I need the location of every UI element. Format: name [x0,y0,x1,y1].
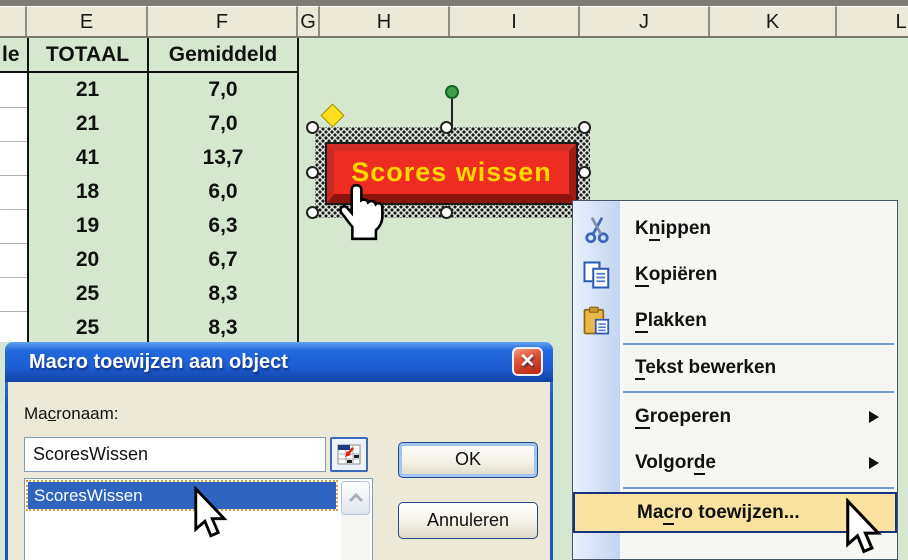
column-header-partial[interactable] [0,6,27,37]
menu-separator [623,343,894,345]
cell-E[interactable]: 20 [28,243,147,277]
submenu-arrow-icon [869,411,879,423]
table-header-gemiddeld[interactable]: Gemiddeld [149,38,297,71]
cell-F[interactable]: 13,7 [149,141,297,175]
column-header-L[interactable]: L [837,6,908,37]
resize-handle-bottom-left[interactable] [306,206,319,219]
cell-E[interactable]: 25 [28,311,147,345]
copy-icon [582,260,612,290]
listbox-scrollbar[interactable] [341,481,370,560]
table-header-totaal[interactable]: TOTAAL [28,38,147,71]
cell-E[interactable]: 21 [28,73,147,107]
column-header-K[interactable]: K [710,6,837,37]
resize-handle-middle-left[interactable] [306,166,319,179]
gridline [0,209,27,210]
arrow-cursor-listbox [192,486,228,545]
cell-F[interactable]: 8,3 [149,311,297,345]
resize-handle-middle-right[interactable] [578,166,591,179]
gridline [0,107,27,108]
dialog-titlebar[interactable]: Macro toewijzen aan object ✕ [5,342,553,382]
resize-handle-top-left[interactable] [306,121,319,134]
adjust-diamond-handle[interactable] [320,103,344,127]
collapse-dialog-icon [337,444,361,465]
chevron-up-icon [348,493,364,503]
scissors-icon [582,214,612,244]
gridline [0,243,27,244]
column-header-G[interactable]: G [298,6,320,37]
gridline [0,141,27,142]
dialog-body: Macronaam: OK Annuleren [8,382,550,560]
cell-E[interactable]: 41 [28,141,147,175]
column-header-H[interactable]: H [320,6,450,37]
column-header-I[interactable]: I [450,6,580,37]
cell-E[interactable]: 25 [28,277,147,311]
left-column-cells[interactable] [0,73,27,342]
menu-item-tekst-bewerken[interactable]: Tekst bewerken [573,348,897,388]
cell-F[interactable]: 8,3 [149,277,297,311]
cell-F[interactable]: 6,0 [149,175,297,209]
close-icon[interactable]: ✕ [512,347,543,376]
macro-assign-dialog: Macro toewijzen aan object ✕ Macronaam: [5,342,553,560]
menu-item-volgorde[interactable]: Volgorde [573,443,897,483]
menu-item-groeperen[interactable]: Groeperen [573,397,897,437]
macro-name-input[interactable] [24,437,326,472]
resize-handle-bottom-middle[interactable] [440,206,453,219]
cell-E[interactable]: 18 [28,175,147,209]
arrow-cursor-menu [843,498,883,560]
cell-F[interactable]: 7,0 [149,107,297,141]
gridline [0,311,27,312]
paste-icon [582,306,612,336]
menu-separator [623,391,894,393]
scroll-up-button[interactable] [341,481,370,515]
cancel-button[interactable]: Annuleren [398,502,538,539]
hand-cursor [336,182,388,247]
menu-item-kopieren[interactable]: Kopiëren [573,255,897,295]
collapse-dialog-button[interactable] [330,437,368,472]
menu-separator [623,487,894,489]
menu-item-plakken[interactable]: Plakken [573,301,897,341]
resize-handle-top-middle[interactable] [440,121,453,134]
gridline [0,175,27,176]
cell-F[interactable]: 6,7 [149,243,297,277]
column-header-F[interactable]: F [148,6,298,37]
column-header-J[interactable]: J [580,6,710,37]
column-header-E[interactable]: E [27,6,148,37]
gridline [0,277,27,278]
submenu-arrow-icon [869,457,879,469]
excel-worksheet-screenshot: E F G H I J K L le TOTAAL Gemiddeld 21 7… [0,0,908,560]
cell-F[interactable]: 6,3 [149,209,297,243]
cell-E[interactable]: 19 [28,209,147,243]
cell-E[interactable]: 21 [28,107,147,141]
rotation-handle[interactable] [445,85,459,99]
macro-name-label: Macronaam: [24,404,119,424]
resize-handle-top-right[interactable] [578,121,591,134]
menu-item-knippen[interactable]: Knippen [573,209,897,249]
macro-list-item-selected[interactable]: ScoresWissen [28,482,336,509]
ok-button[interactable]: OK [398,442,538,478]
dialog-title: Macro toewijzen aan object [29,351,288,373]
cell-F[interactable]: 7,0 [149,73,297,107]
table-header-partial: le [0,38,29,71]
table-border [297,38,299,342]
